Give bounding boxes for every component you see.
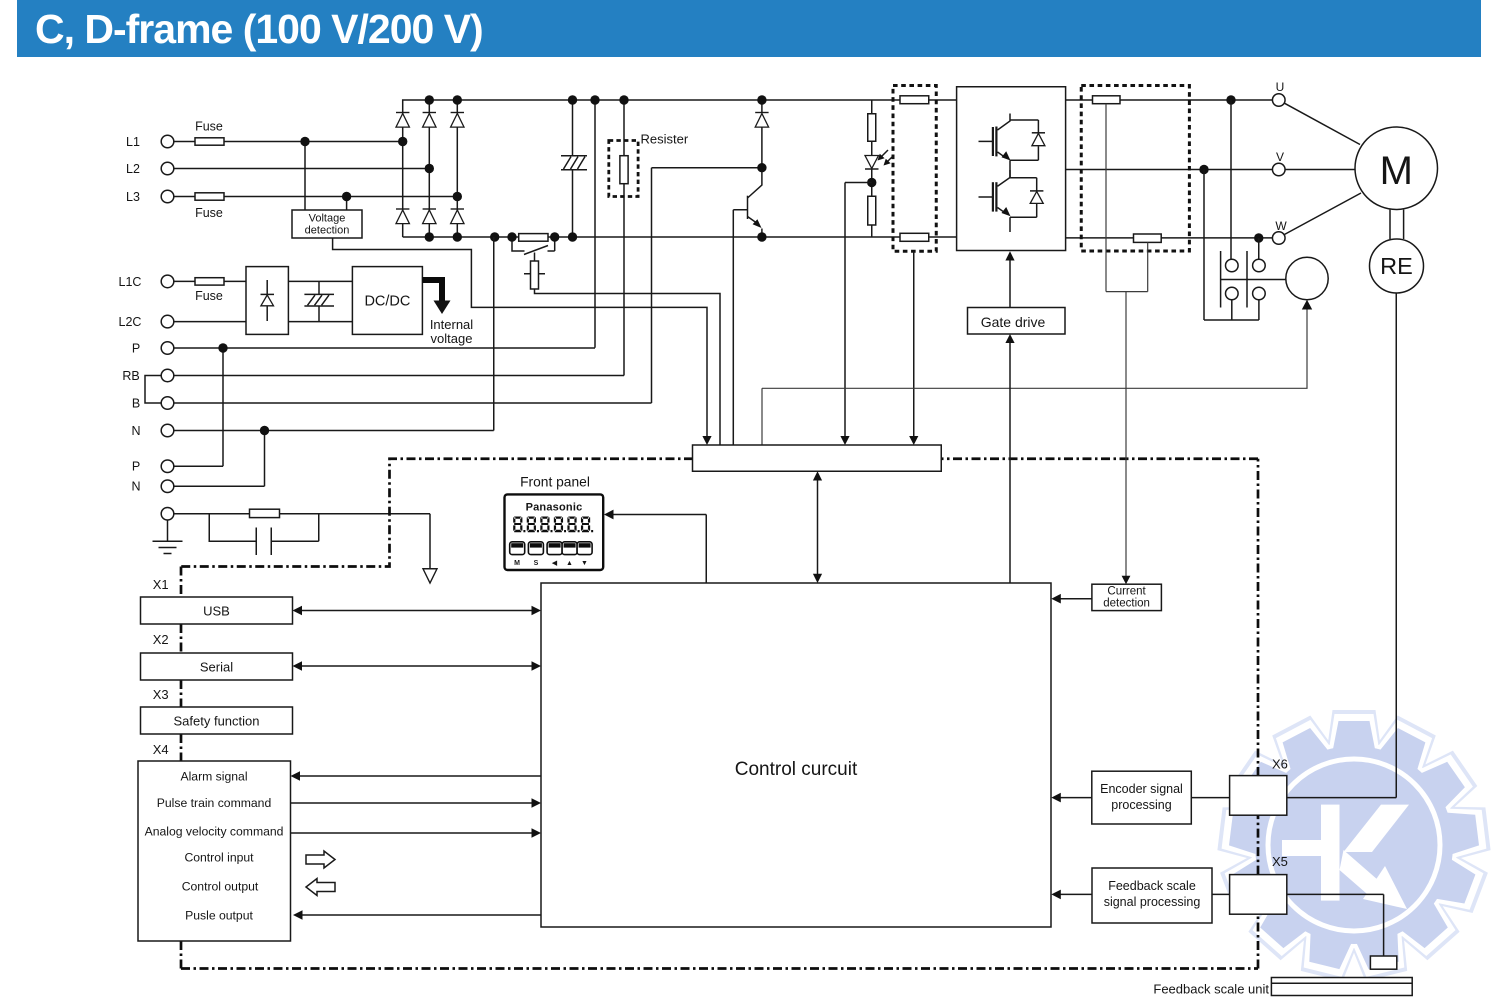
- svg-text:X2: X2: [153, 632, 169, 647]
- svg-text:Fuse: Fuse: [195, 120, 223, 134]
- svg-text:Control input: Control input: [184, 850, 254, 864]
- svg-text:Fuse: Fuse: [195, 206, 223, 220]
- svg-text:Panasonic: Panasonic: [526, 502, 583, 514]
- svg-text:Safety function: Safety function: [174, 714, 260, 729]
- svg-text:V: V: [1276, 150, 1284, 164]
- svg-text:X1: X1: [153, 577, 169, 592]
- svg-text:Gate drive: Gate drive: [981, 314, 1046, 330]
- svg-text:L1: L1: [126, 135, 140, 149]
- svg-text:▲: ▲: [566, 560, 573, 567]
- svg-text:processing: processing: [1111, 798, 1171, 812]
- svg-text:L2: L2: [126, 162, 140, 176]
- svg-text:Fuse: Fuse: [195, 289, 223, 303]
- svg-text:◀: ◀: [552, 560, 558, 567]
- svg-text:X5: X5: [1272, 854, 1288, 869]
- svg-text:L3: L3: [126, 190, 140, 204]
- svg-text:Voltage: Voltage: [309, 213, 346, 225]
- svg-text:M: M: [1380, 149, 1413, 193]
- svg-text:L2C: L2C: [119, 315, 142, 329]
- svg-text:Pusle output: Pusle output: [185, 908, 253, 922]
- svg-text:C, D-frame (100 V/200 V): C, D-frame (100 V/200 V): [35, 6, 483, 52]
- svg-text:B: B: [132, 397, 140, 411]
- svg-text:W: W: [1275, 219, 1287, 233]
- svg-text:Resister: Resister: [641, 132, 689, 147]
- svg-text:Control output: Control output: [182, 879, 259, 893]
- svg-text:Feedback scale: Feedback scale: [1108, 879, 1196, 893]
- svg-text:X4: X4: [153, 742, 169, 757]
- svg-text:▼: ▼: [581, 560, 588, 567]
- svg-text:Pulse train command: Pulse train command: [157, 796, 271, 810]
- svg-text:RE: RE: [1380, 253, 1413, 279]
- svg-text:Analog velocity command: Analog velocity command: [145, 824, 284, 838]
- svg-text:Encoder signal: Encoder signal: [1100, 782, 1183, 796]
- svg-text:X6: X6: [1272, 757, 1288, 772]
- svg-text:Internal: Internal: [430, 317, 473, 332]
- svg-text:voltage: voltage: [431, 331, 473, 346]
- svg-text:detection: detection: [1103, 598, 1150, 610]
- svg-text:S: S: [534, 560, 539, 567]
- svg-text:Feedback scale unit: Feedback scale unit: [1153, 982, 1269, 997]
- svg-text:P: P: [132, 342, 140, 356]
- svg-text:Control curcuit: Control curcuit: [735, 759, 858, 780]
- svg-text:USB: USB: [203, 604, 230, 619]
- svg-text:Alarm signal: Alarm signal: [180, 769, 247, 783]
- svg-text:N: N: [131, 424, 140, 438]
- svg-text:Current: Current: [1107, 586, 1146, 598]
- svg-text:N: N: [131, 480, 140, 494]
- svg-text:RB: RB: [122, 369, 139, 383]
- svg-text:L1C: L1C: [119, 275, 142, 289]
- svg-text:P: P: [132, 460, 140, 474]
- svg-text:Serial: Serial: [200, 660, 233, 675]
- svg-text:Front panel: Front panel: [520, 475, 590, 490]
- svg-text:DC/DC: DC/DC: [364, 294, 410, 310]
- svg-text:X3: X3: [153, 687, 169, 702]
- svg-text:detection: detection: [305, 225, 350, 237]
- svg-text:M: M: [514, 560, 520, 567]
- svg-text:U: U: [1276, 80, 1285, 94]
- svg-text:signal processing: signal processing: [1104, 895, 1201, 909]
